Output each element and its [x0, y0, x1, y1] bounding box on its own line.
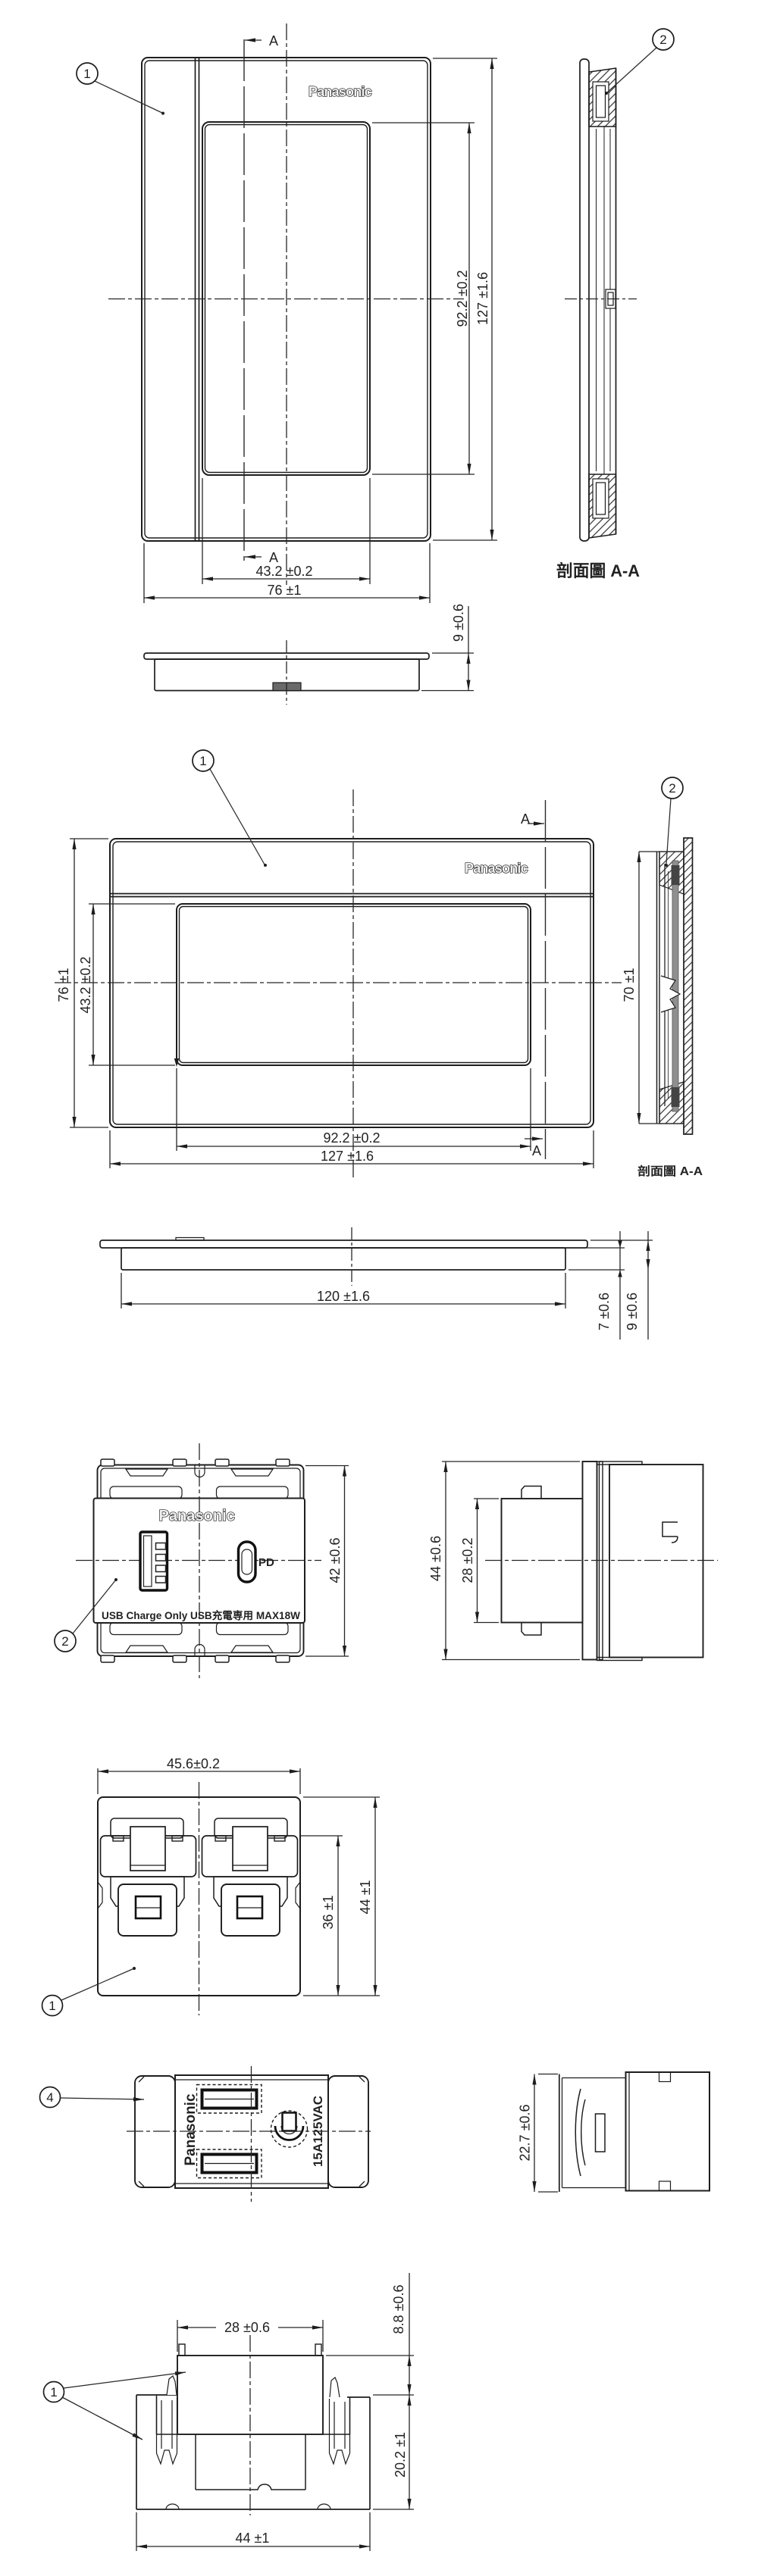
svg-text:20.2 ±1: 20.2 ±1	[393, 2432, 408, 2478]
svg-text:2: 2	[659, 33, 666, 47]
svg-text:28 ±0.6: 28 ±0.6	[224, 2320, 270, 2335]
svg-text:A: A	[532, 1143, 541, 1158]
svg-text:2: 2	[61, 1634, 68, 1649]
svg-text:1: 1	[49, 1999, 55, 2013]
svg-text:A: A	[269, 550, 278, 565]
svg-text:PD: PD	[258, 1556, 274, 1569]
svg-text:USB Charge Only USB充電専用 MAX1: USB Charge Only USB充電専用 MAX18W	[102, 1609, 300, 1621]
svg-text:剖面圖 A-A: 剖面圖 A-A	[556, 561, 640, 580]
svg-text:127 ±1.6: 127 ±1.6	[321, 1149, 374, 1164]
svg-text:44 ±0.6: 44 ±0.6	[428, 1536, 443, 1581]
svg-text:剖面圖 A-A: 剖面圖 A-A	[637, 1164, 703, 1178]
svg-text:44 ±1: 44 ±1	[358, 1880, 373, 1915]
svg-text:36 ±1: 36 ±1	[321, 1896, 336, 1930]
svg-text:1: 1	[83, 67, 90, 81]
svg-text:92.2 ±0.2: 92.2 ±0.2	[455, 270, 470, 327]
svg-text:45.6±0.2: 45.6±0.2	[167, 1756, 220, 1771]
svg-text:76 ±1: 76 ±1	[268, 583, 302, 598]
svg-text:7 ±0.6: 7 ±0.6	[597, 1293, 612, 1330]
svg-text:28 ±0.2: 28 ±0.2	[460, 1538, 475, 1583]
svg-text:Panasonic: Panasonic	[309, 84, 372, 99]
svg-text:Panasonic: Panasonic	[465, 861, 528, 876]
svg-text:9 ±0.6: 9 ±0.6	[451, 604, 466, 642]
svg-text:1: 1	[199, 754, 206, 768]
svg-text:Panasonic: Panasonic	[183, 2093, 199, 2165]
svg-text:A: A	[269, 33, 278, 48]
svg-text:76 ±1: 76 ±1	[56, 968, 71, 1002]
svg-text:8.8 ±0.6: 8.8 ±0.6	[391, 2285, 406, 2334]
svg-text:A: A	[521, 811, 530, 827]
svg-text:127 ±1.6: 127 ±1.6	[475, 272, 490, 325]
svg-text:43.2 ±0.2: 43.2 ±0.2	[78, 957, 93, 1014]
svg-text:22.7 ±0.6: 22.7 ±0.6	[518, 2105, 533, 2162]
svg-text:4: 4	[46, 2090, 53, 2105]
svg-text:42 ±0.6: 42 ±0.6	[327, 1538, 343, 1583]
svg-text:Panasonic: Panasonic	[159, 1508, 236, 1524]
svg-text:1: 1	[50, 2385, 57, 2399]
svg-text:92.2 ±0.2: 92.2 ±0.2	[324, 1130, 381, 1146]
svg-text:2: 2	[669, 781, 675, 796]
svg-text:120 ±1.6: 120 ±1.6	[317, 1289, 370, 1304]
svg-text:43.2 ±0.2: 43.2 ±0.2	[256, 564, 313, 579]
svg-text:9 ±0.6: 9 ±0.6	[625, 1293, 640, 1330]
svg-text:70 ±1: 70 ±1	[622, 968, 637, 1002]
svg-text:44 ±1: 44 ±1	[236, 2531, 270, 2546]
